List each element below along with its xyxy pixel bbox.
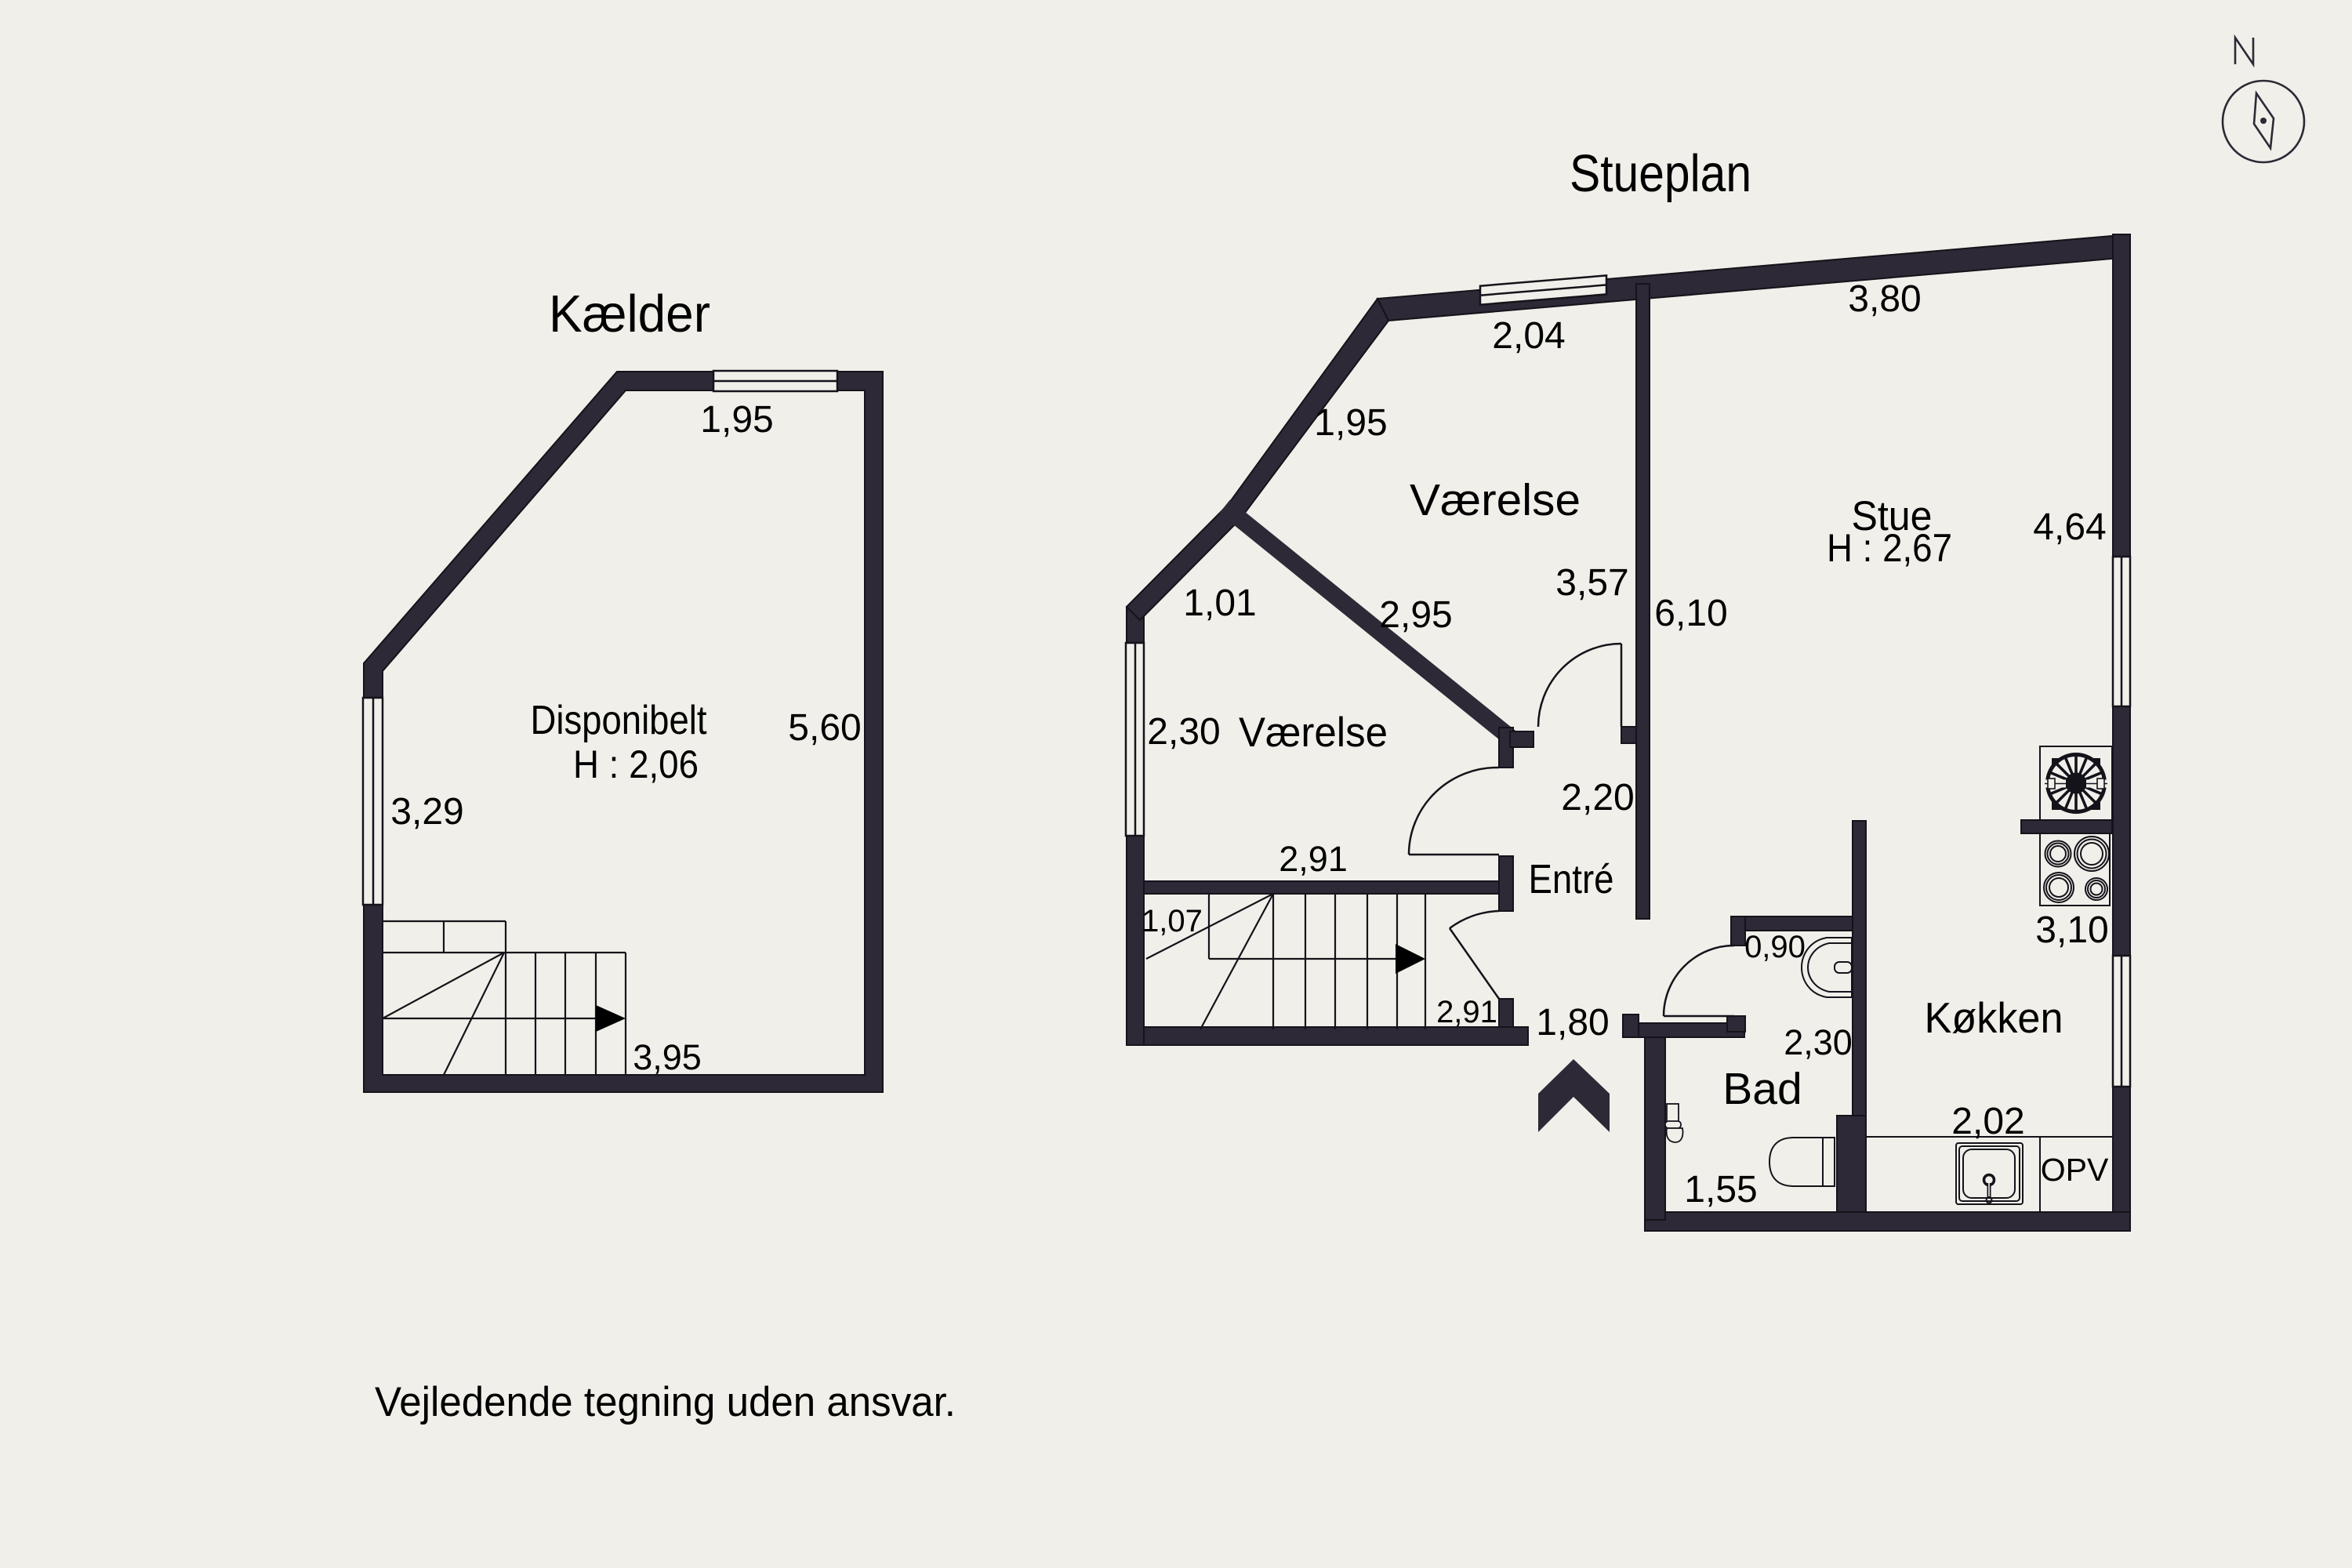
svg-text:1,07: 1,07 bbox=[1142, 904, 1203, 938]
svg-text:3,57: 3,57 bbox=[1555, 562, 1628, 604]
svg-text:3,80: 3,80 bbox=[1848, 278, 1921, 320]
svg-text:3,29: 3,29 bbox=[390, 791, 463, 833]
svg-text:5,60: 5,60 bbox=[788, 707, 861, 749]
svg-text:1,80: 1,80 bbox=[1536, 1002, 1609, 1044]
svg-text:Kælder: Kælder bbox=[549, 285, 710, 343]
svg-text:1,95: 1,95 bbox=[700, 399, 773, 441]
svg-text:Bad: Bad bbox=[1722, 1064, 1802, 1114]
svg-text:2,95: 2,95 bbox=[1379, 594, 1452, 636]
svg-text:6,10: 6,10 bbox=[1654, 593, 1727, 634]
svg-text:Disponibelt: Disponibelt bbox=[531, 698, 707, 743]
svg-text:3,95: 3,95 bbox=[633, 1037, 702, 1077]
svg-text:Entré: Entré bbox=[1529, 857, 1614, 902]
svg-text:OPV: OPV bbox=[2041, 1152, 2109, 1188]
svg-text:H : 2,67: H : 2,67 bbox=[1827, 526, 1952, 570]
svg-text:Værelse: Værelse bbox=[1239, 710, 1388, 756]
svg-text:1,01: 1,01 bbox=[1183, 583, 1256, 624]
svg-text:Vejledende tegning uden ansvar: Vejledende tegning uden ansvar. bbox=[375, 1379, 956, 1425]
svg-text:2,20: 2,20 bbox=[1561, 777, 1634, 818]
svg-text:2,02: 2,02 bbox=[1951, 1101, 2024, 1142]
svg-text:Køkken: Køkken bbox=[1925, 993, 2063, 1042]
svg-text:H : 2,06: H : 2,06 bbox=[573, 742, 699, 786]
svg-text:2,30: 2,30 bbox=[1147, 711, 1220, 753]
svg-text:Stueplan: Stueplan bbox=[1570, 144, 1751, 203]
svg-text:2,04: 2,04 bbox=[1492, 315, 1565, 357]
svg-text:2,91: 2,91 bbox=[1279, 839, 1348, 879]
svg-text:2,91: 2,91 bbox=[1436, 995, 1497, 1029]
svg-text:0,90: 0,90 bbox=[1744, 930, 1806, 964]
svg-text:2,30: 2,30 bbox=[1784, 1022, 1853, 1062]
svg-text:Værelse: Værelse bbox=[1410, 475, 1581, 525]
svg-text:3,10: 3,10 bbox=[2035, 909, 2108, 951]
svg-text:1,95: 1,95 bbox=[1314, 402, 1387, 444]
svg-text:1,55: 1,55 bbox=[1684, 1169, 1757, 1210]
svg-text:4,64: 4,64 bbox=[2033, 506, 2106, 548]
